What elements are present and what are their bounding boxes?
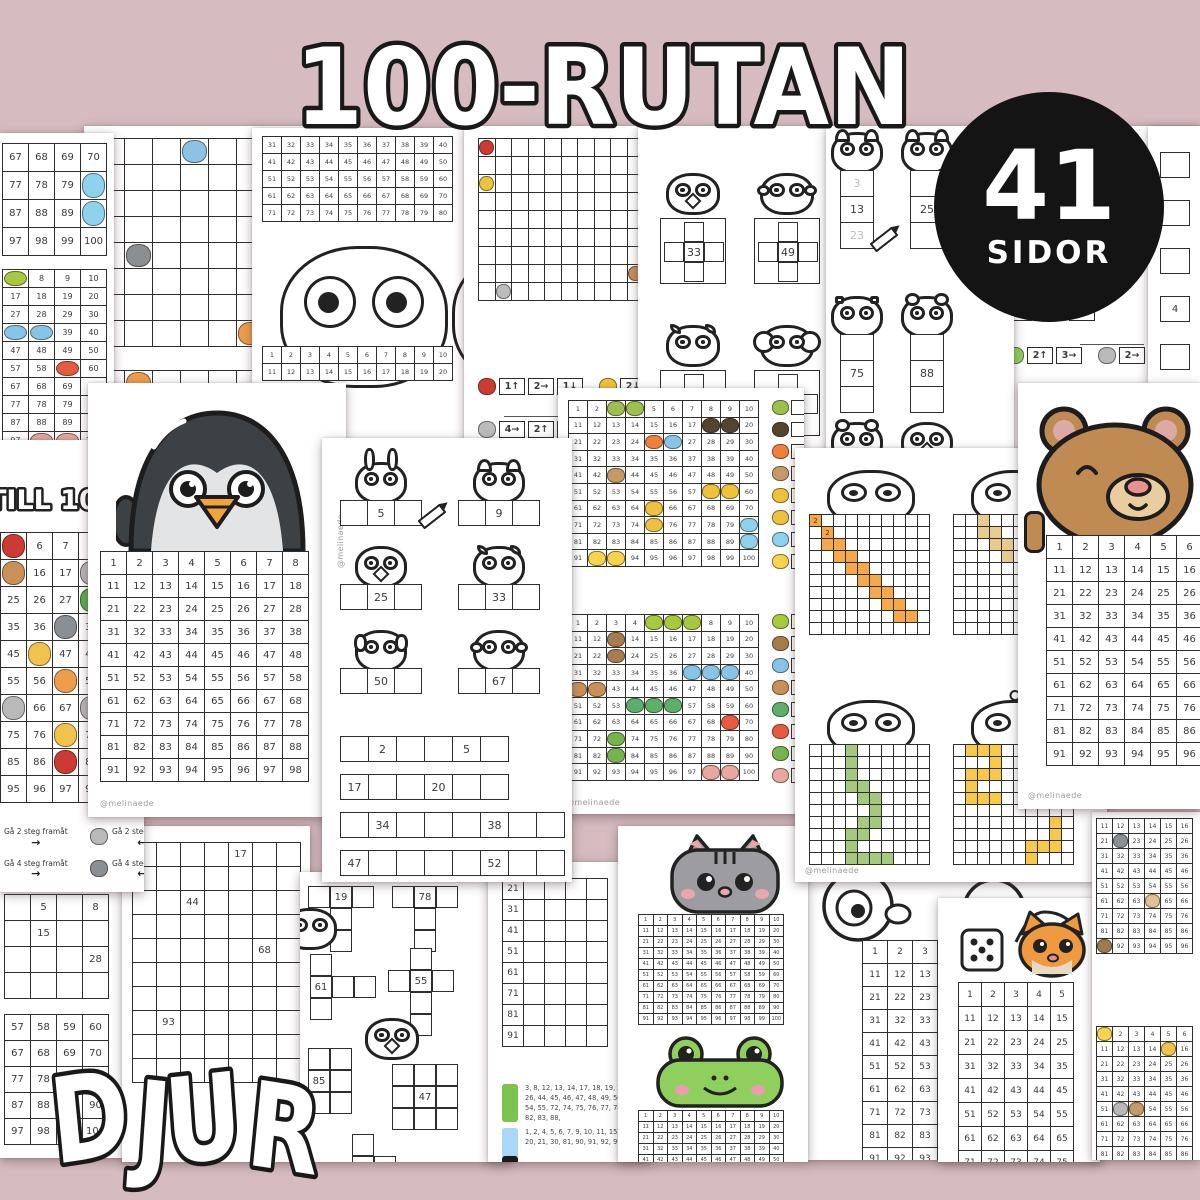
penguin-icon [126, 244, 151, 267]
grid-cell [577, 156, 595, 175]
grid-cell: 55 [338, 170, 358, 188]
grid-cell: 13 [1128, 1041, 1145, 1057]
grid-cell: 13 [912, 963, 938, 987]
grid-cell: 93 [1128, 938, 1145, 954]
grid-cell [644, 614, 664, 632]
owl-icon [666, 325, 720, 367]
grid-cell: 95 [0, 775, 27, 803]
grid-cell: 61 [100, 689, 127, 713]
answer-box: 4 [1160, 296, 1190, 322]
grid-cell: 5 [338, 346, 358, 364]
grid-cell [511, 246, 529, 265]
grid-cell [180, 866, 205, 891]
grid-cell: 47 [682, 680, 702, 698]
number-strip: 75 [840, 334, 874, 413]
grid-cell [565, 941, 587, 963]
grid-cell: 68 [701, 500, 721, 518]
grid-cell: 57 [256, 666, 283, 690]
grid-cell: 87 [256, 735, 283, 759]
shape-cell: 33 [684, 242, 704, 262]
fill-in-cell [396, 812, 425, 838]
fill-in-row: 4752 [340, 850, 565, 876]
bear-illustration [1026, 401, 1200, 535]
grid-cell: 78 [701, 516, 721, 534]
grid-cell: 24 [178, 597, 205, 621]
number-strip: 31323 [840, 170, 874, 249]
gray-cat-illustration [664, 832, 786, 914]
grid-cell: 78 [282, 712, 309, 736]
shape-cell [778, 222, 798, 242]
strip-cell [340, 500, 368, 526]
grid-cell: 95 [204, 758, 231, 782]
jellyfish-icon [740, 534, 757, 549]
grid-cell: 33 [606, 450, 626, 468]
grid-cell: 1 [1046, 535, 1073, 559]
grid-cell [132, 986, 157, 1011]
strip-cell [394, 668, 422, 694]
grid-cell: 41 [502, 920, 524, 942]
grid-cell: 51 [502, 941, 524, 963]
grid-cell [276, 938, 301, 963]
grid-cell: 85 [1150, 719, 1177, 743]
grid-cell: 95 [644, 763, 664, 781]
grid-cell [52, 721, 79, 749]
grid-cell: 88 [28, 413, 55, 432]
grid-cell [208, 242, 237, 269]
grid-cell: 78 [28, 395, 55, 414]
grid-cell [720, 483, 740, 501]
grid-cell [610, 192, 628, 211]
grid-cell: 62 [587, 714, 607, 732]
grid-cell: 91 [502, 1025, 524, 1047]
grid-cell: 84 [625, 533, 645, 551]
hundred-chart: 2345611121314162122232425263132333435364… [1096, 1026, 1193, 1160]
grid-cell [30, 972, 57, 999]
penguin-icon [90, 860, 108, 877]
grid-cell: 12 [981, 1006, 1005, 1031]
grid-cell [586, 899, 608, 921]
grid-cell: 71 [100, 712, 127, 736]
grid-cell: 41 [1046, 627, 1073, 651]
grid-cell [180, 986, 205, 1011]
grid-cell [80, 171, 107, 200]
grid-cell [577, 246, 595, 265]
grid-cell: 96 [663, 549, 683, 567]
grid-cell: 52 [126, 666, 153, 690]
grid-cell [124, 268, 153, 295]
grid-cell: 28 [282, 597, 309, 621]
grid-cell [577, 192, 595, 211]
grid-cell: 54 [178, 666, 205, 690]
grid-cell: 42 [653, 1154, 669, 1162]
grid-cell: 86 [663, 533, 683, 551]
grid-cell: 15 [644, 631, 664, 649]
grid-cell: 62 [887, 1078, 913, 1102]
grid-cell: 15 [1150, 558, 1177, 582]
grid-cell: 81 [1096, 923, 1113, 939]
owl-icon [772, 636, 789, 651]
grid-cell: 19 [54, 287, 81, 306]
grid-cell [528, 228, 546, 247]
grid-cell: 77 [682, 516, 702, 534]
fill-in-cell [536, 812, 565, 838]
grid-cell: 93 [156, 1010, 181, 1035]
tiger-g-icon [90, 828, 108, 845]
grid-cell: 11 [1046, 558, 1073, 582]
grid-cell: 2 [281, 346, 301, 364]
fill-in-cell: 38 [480, 812, 509, 838]
grid-cell: 68 [282, 689, 309, 713]
grid-cell: 67 [2, 377, 29, 396]
grid-cell: 53 [1004, 1102, 1028, 1127]
grid-cell [495, 156, 513, 175]
grid-cell: 45 [338, 153, 358, 171]
fill-in-rows: 25172034384752 [340, 736, 565, 882]
grid-cell [528, 210, 546, 229]
grid-cell: 18 [701, 631, 721, 649]
grid-cell: 1 [100, 551, 127, 575]
grid-cell: 16 [230, 574, 257, 598]
grid-cell: 28 [701, 647, 721, 665]
shape-cell [436, 1064, 458, 1086]
grid-cell: 3 [1128, 1026, 1145, 1042]
grid-cell [124, 138, 153, 165]
grid-cell: 25 [1160, 833, 1177, 849]
hundred-chart: 1112131415162123242526313233343536414243… [1096, 818, 1193, 954]
grid-cell: 71 [1096, 1131, 1113, 1147]
grid-cell: 16 [1176, 558, 1200, 582]
grid-cell: 58 [395, 170, 415, 188]
grid-cell: 33 [1128, 1071, 1145, 1087]
grid-cell [152, 216, 181, 243]
move-token: 2↑ [1027, 347, 1053, 364]
grid-cell: 66 [663, 714, 683, 732]
fill-in-row: 1720 [340, 774, 565, 800]
grid-cell: 55 [1160, 1101, 1177, 1117]
grid-cell [528, 156, 546, 175]
grid-cell [544, 962, 566, 984]
hundred-chart: 1234561112131415162122232425263132333435… [1046, 535, 1200, 766]
grid-cell [204, 938, 229, 963]
grid-cell: 16 [1176, 818, 1193, 834]
grid-cell [124, 242, 153, 269]
grid-cell: 57 [4, 1014, 31, 1041]
grid-cell [1112, 833, 1129, 849]
penguin-icon [1113, 834, 1128, 847]
worm-icon [721, 765, 738, 780]
grid-cell: 9 [54, 269, 81, 288]
grid-cell: 54 [319, 170, 339, 188]
grid-cell: 64 [1144, 1116, 1161, 1132]
grid-cell: 65 [338, 187, 358, 205]
grid-cell [180, 216, 209, 243]
grid-cell: 93 [667, 1013, 683, 1025]
grid-cell: 95 [1150, 742, 1177, 766]
grid-cell: 47 [682, 466, 702, 484]
grid-cell: 61 [958, 1126, 982, 1151]
shape-cell [410, 992, 432, 1014]
grid-cell: 76 [663, 516, 683, 534]
shape-cell: 49 [778, 242, 798, 262]
grid-cell: 52 [587, 697, 607, 715]
grid-cell [228, 938, 253, 963]
grid-cell: 93 [912, 1147, 938, 1160]
grid-cell: 79 [720, 730, 740, 748]
grid-cell [586, 941, 608, 963]
grid-cell [124, 190, 153, 217]
grid-cell [0, 694, 27, 722]
grid-cell [276, 866, 301, 891]
grid-cell [204, 890, 229, 915]
grid-cell [594, 192, 612, 211]
grid-cell [561, 264, 579, 283]
grid-cell [610, 174, 628, 193]
lion-icon [1161, 1042, 1176, 1055]
hamster-icon [2, 561, 25, 584]
shape-cell [704, 242, 724, 262]
grid-cell: 74 [1144, 908, 1161, 924]
grid-cell: 56 [26, 667, 53, 695]
grid-cell [156, 866, 181, 891]
grid-cell: 25 [1050, 1030, 1074, 1055]
grid-cell: 65 [1150, 673, 1177, 697]
number-grid: 1234511121314152122232425313233343541424… [958, 982, 1074, 1162]
grid-cell [478, 192, 496, 211]
grid-cell: 60 [739, 483, 759, 501]
grid-cell [228, 914, 253, 939]
grid-cell: 42 [1072, 627, 1099, 651]
watermark: @melinaede [805, 866, 859, 875]
instruction-group: 2↑3→ [1006, 347, 1082, 364]
fill-in-cell [508, 850, 537, 876]
grid-cell: 18 [395, 363, 415, 381]
grid-cell: 98 [28, 227, 55, 256]
grid-cell: 74 [1144, 1131, 1161, 1147]
grid-cell: 5 [30, 894, 57, 921]
grid-cell [4, 894, 31, 921]
worm-icon [772, 768, 789, 783]
grid-cell: 48 [740, 1154, 756, 1162]
grid-cell: 76 [1176, 696, 1200, 720]
grid-cell: 56 [1176, 878, 1193, 894]
grid-cell: 17 [682, 417, 702, 435]
grid-cell [180, 190, 209, 217]
path-grid [809, 744, 930, 865]
crab-icon [721, 715, 738, 730]
fill-in-cell [452, 850, 481, 876]
grid-cell [561, 156, 579, 175]
grid-cell: 71 [1046, 696, 1073, 720]
grid-cell: 71 [502, 983, 524, 1005]
lion-icon [54, 723, 77, 746]
fill-in-cell [452, 774, 481, 800]
strip-cell: 25 [367, 584, 395, 610]
grid-cell [523, 941, 545, 963]
grid-cell: 9 [720, 614, 740, 632]
grid-cell: 20 [80, 287, 107, 306]
grid-cell [565, 1025, 587, 1047]
grid-cell: 58 [28, 359, 55, 378]
green-swatch [502, 1084, 518, 1122]
grid-cell: 28 [82, 946, 109, 973]
strip-cell [840, 386, 874, 413]
grid-cell: 3 [1098, 535, 1125, 559]
grid-cell [228, 986, 253, 1011]
grid-cell: 41 [958, 1078, 982, 1103]
watermark: @melinaede [1028, 791, 1082, 800]
grid-cell [180, 842, 205, 867]
grid-cell: 82 [1112, 923, 1129, 939]
fill-in-grid: 17446893 [132, 842, 301, 1083]
grid-cell [577, 228, 595, 247]
legend-arrow: ← [137, 837, 144, 848]
grid-cell: 26 [663, 647, 683, 665]
grid-cell: 1 [958, 982, 982, 1007]
grid-cell [204, 914, 229, 939]
grid-cell: 4 [1144, 1026, 1161, 1042]
grid-cell: 92 [587, 763, 607, 781]
grid-cell: 27 [256, 597, 283, 621]
grid-cell [594, 246, 612, 265]
grid-cell [544, 983, 566, 1005]
grid-cell: 42 [587, 466, 607, 484]
grid-cell: 76 [1176, 908, 1193, 924]
grid-cell: 82 [1072, 719, 1099, 743]
grid-cell [523, 920, 545, 942]
grid-cell: 10 [80, 269, 107, 288]
grid-cell: 31 [1096, 1071, 1113, 1087]
shape-cell [310, 998, 332, 1020]
grid-cell: 72 [1112, 908, 1129, 924]
grid-cell: 12 [1112, 818, 1129, 834]
grid-cell [610, 282, 628, 301]
grid-cell [544, 246, 562, 265]
strip-cell: 5 [367, 500, 395, 526]
grid-cell: 69 [414, 187, 434, 205]
jellyfish-icon [772, 532, 789, 547]
grid-cell [252, 986, 277, 1011]
grid-cell [124, 294, 153, 321]
grid-cell: 1 [568, 400, 588, 418]
strip-cell: 3 [840, 170, 874, 197]
grid-cell: 54 [1027, 1102, 1051, 1127]
grid-cell: 86 [1176, 923, 1193, 939]
grid-cell: 93 [606, 763, 626, 781]
grid-cell: 11 [1096, 1041, 1113, 1057]
grid-cell: 49 [54, 341, 81, 360]
owl-blue-icon [182, 140, 207, 163]
category-label: DJUR [45, 1056, 330, 1196]
grid-cell: 45 [696, 1154, 712, 1162]
bee-icon [772, 488, 789, 503]
page-count-badge: 41 SIDOR [934, 92, 1164, 322]
grid-cell: 86 [663, 747, 683, 765]
grid-cell [156, 986, 181, 1011]
grid-cell [208, 320, 237, 347]
grid-cell: 44 [625, 466, 645, 484]
ant-icon [702, 418, 719, 433]
grid-cell: 92 [1112, 938, 1129, 954]
grid-cell [610, 246, 628, 265]
grid-cell: 2 [126, 551, 153, 575]
grid-cell: 19 [720, 631, 740, 649]
grid-cell: 5 [204, 551, 231, 575]
grid-cell: 78 [28, 171, 55, 200]
grid-cell: 8 [82, 894, 109, 921]
grid-cell [528, 246, 546, 265]
hamster-icon [772, 680, 789, 695]
game-legend: Gå 2 steg framåt→Gå 2 steg bakåt←Gå 4 st… [4, 828, 144, 879]
grid-cell [606, 730, 626, 748]
grid-cell: 94 [1124, 742, 1151, 766]
grid-cell: 75 [1050, 1150, 1074, 1162]
grid-cell [663, 697, 683, 715]
grid-cell: 68 [28, 143, 55, 172]
grid-cell: 52 [887, 1055, 913, 1079]
grid-cell: 41 [862, 1032, 888, 1056]
grid-cell [606, 400, 626, 418]
shape-cell [414, 1108, 436, 1130]
grid-cell: 27 [682, 433, 702, 451]
grid-cell: 67 [4, 1040, 31, 1067]
grid-cell [511, 264, 529, 283]
grid-cell [511, 282, 529, 301]
grid-cell [544, 156, 562, 175]
grid-cell: 20 [739, 631, 759, 649]
caterpillar-icon [4, 271, 27, 287]
dog-icon [772, 466, 789, 481]
grid-cell: 55 [1160, 878, 1177, 894]
grid-cell [1096, 1026, 1113, 1042]
legend-item: Gå 2 steg framåt→ [4, 828, 86, 848]
grid-cell [577, 282, 595, 301]
grid-cell: 75 [204, 712, 231, 736]
grid-cell: 96 [230, 758, 257, 782]
strip-cell: 13 [840, 196, 874, 223]
bee-icon [479, 176, 494, 192]
grid-cell [208, 294, 237, 321]
grid-cell: 36 [1176, 848, 1193, 864]
grid-cell: 63 [1004, 1126, 1028, 1151]
crab-icon [772, 724, 789, 739]
grid-cell [208, 268, 237, 295]
grid-cell: 57 [682, 697, 702, 715]
grid-cell: 56 [230, 666, 257, 690]
grid-cell: 98 [701, 549, 721, 567]
grid-cell [156, 938, 181, 963]
grid-cell: 37 [682, 450, 702, 468]
number-grid: 1234567891011121314151617181920 [262, 346, 453, 381]
grid-cell [1144, 893, 1161, 909]
grid-cell: 14 [319, 363, 339, 381]
worksheet-cat-frog-charts: 1234567891011121314151617181920212223242… [618, 826, 808, 1162]
grid-cell: 100 [769, 1013, 785, 1025]
grid-cell [478, 156, 496, 175]
grid-cell [495, 192, 513, 211]
grid-cell: 70 [739, 714, 759, 732]
grid-cell: 86 [1176, 719, 1200, 743]
grid-cell: 4 [1027, 982, 1051, 1007]
grid-cell [228, 890, 253, 915]
grid-cell [565, 899, 587, 921]
grid-cell [495, 282, 513, 301]
grid-cell [252, 914, 277, 939]
grid-cell: 77 [2, 395, 29, 414]
snake-icon [607, 748, 624, 763]
grid-cell [561, 228, 579, 247]
grid-cell: 83 [1098, 719, 1125, 743]
grid-cell: 42 [1112, 1086, 1129, 1102]
